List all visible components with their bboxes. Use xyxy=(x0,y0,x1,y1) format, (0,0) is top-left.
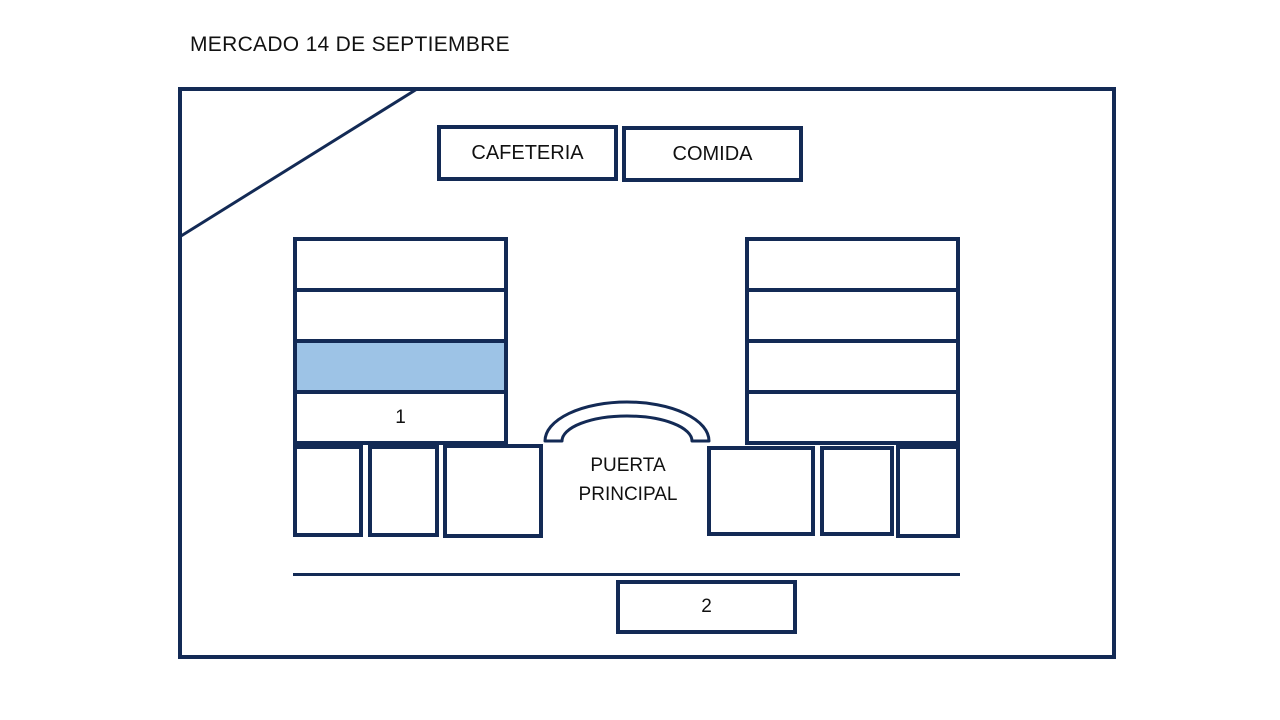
page-title: MERCADO 14 DE SEPTIEMBRE xyxy=(190,33,510,57)
stall-2-box: 2 xyxy=(616,580,797,634)
right-stall-row-2 xyxy=(749,292,956,343)
slide-canvas: { "title": "MERCADO 14 DE SEPTIEMBRE", "… xyxy=(0,0,1280,720)
stall-2-label: 2 xyxy=(701,596,712,618)
left-stall-block: 1 xyxy=(293,237,508,445)
small-stall-box-left-3 xyxy=(443,444,543,538)
small-stall-box-right-3 xyxy=(896,445,960,538)
stall-1-label: 1 xyxy=(395,407,406,429)
comida-box: COMIDA xyxy=(622,126,803,182)
small-stall-box-left-2 xyxy=(368,445,439,537)
left-stall-row-2 xyxy=(297,292,504,343)
entrance-label-line2: PRINCIPAL xyxy=(546,480,710,509)
right-stall-block xyxy=(745,237,960,445)
left-stall-row-1 xyxy=(297,241,504,292)
small-stall-box-right-2 xyxy=(820,446,894,536)
walkway-line xyxy=(293,573,960,576)
comida-label: COMIDA xyxy=(673,143,753,166)
highlighted-stall-row xyxy=(297,343,504,394)
stall-1-row: 1 xyxy=(297,394,504,441)
entrance-label: PUERTA PRINCIPAL xyxy=(546,451,710,509)
entrance-label-line1: PUERTA xyxy=(546,451,710,480)
small-stall-box-left-1 xyxy=(293,445,363,537)
cafeteria-box: CAFETERIA xyxy=(437,125,618,181)
right-stall-row-1 xyxy=(749,241,956,292)
right-stall-row-4 xyxy=(749,394,956,441)
right-stall-row-3 xyxy=(749,343,956,394)
small-stall-box-right-1 xyxy=(707,446,815,536)
cafeteria-label: CAFETERIA xyxy=(471,142,583,165)
